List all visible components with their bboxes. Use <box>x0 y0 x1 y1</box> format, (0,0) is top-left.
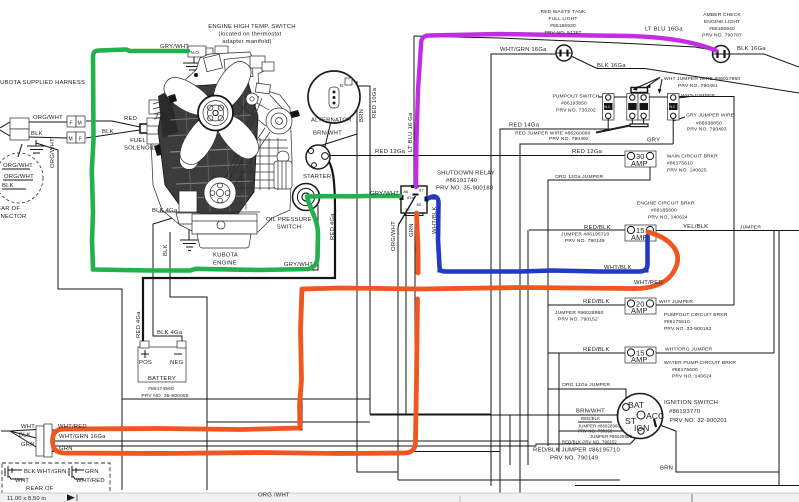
svg-text:WHT/GRN 16Ga: WHT/GRN 16Ga <box>59 434 106 440</box>
svg-text:PRV NO. 35-900188: PRV NO. 35-900188 <box>436 186 494 192</box>
svg-text:GRY/WHT: GRY/WHT <box>160 44 189 50</box>
svg-text:PRV NO. 33-900163: PRV NO. 33-900163 <box>664 326 711 332</box>
svg-text:PRV NO. 730202: PRV NO. 730202 <box>556 108 596 114</box>
svg-text:JUMPER #86028960: JUMPER #86028960 <box>590 434 632 439</box>
svg-text:N.C: N.C <box>605 105 611 109</box>
svg-text:WHT JUMPER WIRE #86027950: WHT JUMPER WIRE #86027950 <box>664 76 740 82</box>
svg-text:AMP: AMP <box>631 159 648 168</box>
svg-text:AMP: AMP <box>631 355 648 364</box>
svg-text:BLK 16Ga: BLK 16Ga <box>737 46 766 52</box>
svg-text:WHT/RED: WHT/RED <box>76 478 105 484</box>
svg-text:PUMPOUT CIRCUIT BRKR: PUMPOUT CIRCUIT BRKR <box>664 312 728 318</box>
svg-text:GRY: GRY <box>647 138 660 144</box>
svg-text:M: M <box>69 137 73 143</box>
svg-text:ENGINE: ENGINE <box>213 261 237 267</box>
svg-text:BLK 4Ga: BLK 4Ga <box>152 208 178 214</box>
svg-text:BATTERY: BATTERY <box>148 376 176 382</box>
svg-text:ACC: ACC <box>646 411 664 421</box>
svg-text:PRV NO. 790152: PRV NO. 790152 <box>578 429 613 434</box>
svg-text:RED/BLK: RED/BLK <box>584 225 611 231</box>
svg-text:PUMPOUT SWITCH: PUMPOUT SWITCH <box>552 94 599 100</box>
svg-text:M: M <box>78 121 82 127</box>
svg-text:ALTERNATOR: ALTERNATOR <box>311 118 352 124</box>
svg-text:BLK: BLK <box>24 469 36 475</box>
svg-text:RED JUMPER WIRE #86260090: RED JUMPER WIRE #86260090 <box>515 131 591 137</box>
svg-text:WHT/BLK: WHT/BLK <box>432 206 438 234</box>
svg-text:SHUTDOWN RELAY: SHUTDOWN RELAY <box>437 171 495 177</box>
svg-text:KUBOTA SUPPLIED HARNESS: KUBOTA SUPPLIED HARNESS <box>0 80 85 86</box>
svg-text:ENGINE LIGHT: ENGINE LIGHT <box>704 19 740 25</box>
svg-text:B: B <box>340 83 343 88</box>
svg-text:YEL/BLK: YEL/BLK <box>683 224 708 230</box>
svg-text:RED 4Ga: RED 4Ga <box>136 311 142 338</box>
svg-text:BLK: BLK <box>163 244 169 256</box>
svg-text:PRV NO. 140625: PRV NO. 140625 <box>667 168 707 174</box>
svg-text:RED/BLK PRV NO. 790152: RED/BLK PRV NO. 790152 <box>562 440 617 445</box>
svg-text:F: F <box>79 137 82 143</box>
svg-text:SWITCH: SWITCH <box>277 225 301 231</box>
svg-text:PRV NO. 790493: PRV NO. 790493 <box>687 127 727 133</box>
svg-text:RED 10Ga: RED 10Ga <box>372 87 378 118</box>
svg-text:87: 87 <box>419 188 424 193</box>
svg-text:#86038850: #86038850 <box>696 121 722 127</box>
svg-text:JUMPER #86028960: JUMPER #86028960 <box>555 310 603 316</box>
svg-text:BLK 4Ga: BLK 4Ga <box>157 330 183 336</box>
svg-text:ORG/WHT: ORG/WHT <box>33 115 63 121</box>
svg-text:(located on thermostat: (located on thermostat <box>218 32 281 38</box>
svg-text:GRN: GRN <box>85 469 99 475</box>
svg-text:PRV NO. 51387: PRV NO. 51387 <box>545 30 582 36</box>
svg-text:GRN: GRN <box>59 446 73 452</box>
svg-text:WHT/RED: WHT/RED <box>634 280 663 286</box>
svg-text:RED 14Ga: RED 14Ga <box>509 123 540 129</box>
svg-text:LT BLU 16Ga: LT BLU 16Ga <box>645 27 683 33</box>
svg-text:BLK: BLK <box>2 183 14 189</box>
svg-text:#86175610: #86175610 <box>667 161 693 167</box>
svg-text:WHT: WHT <box>21 424 35 430</box>
svg-text:30: 30 <box>405 207 410 212</box>
svg-text:WHT/GRN 16Ga: WHT/GRN 16Ga <box>500 47 547 53</box>
svg-text:ORG/WHT: ORG/WHT <box>50 138 56 168</box>
svg-text:F: F <box>70 121 73 127</box>
svg-text:BRN: BRN <box>660 466 673 472</box>
svg-text:AMBER CHECK: AMBER CHECK <box>703 12 741 18</box>
svg-text:RED/BLK: RED/BLK <box>583 347 610 353</box>
svg-text:RED 12Ga: RED 12Ga <box>375 149 406 155</box>
svg-text:RED/BLK: RED/BLK <box>581 416 600 421</box>
svg-text:ORG /WHT: ORG /WHT <box>258 493 290 499</box>
svg-text:85: 85 <box>417 202 422 207</box>
svg-text:FULL LIGHT: FULL LIGHT <box>548 16 577 22</box>
svg-text:BLK: BLK <box>102 129 114 135</box>
svg-text:RED 12Ga: RED 12Ga <box>572 149 603 155</box>
svg-text:GRY/WHT: GRY/WHT <box>370 191 399 197</box>
svg-text:FUEL: FUEL <box>130 138 146 144</box>
svg-text:PRV NO. 140624: PRV NO. 140624 <box>672 374 712 380</box>
svg-text:LT BLU 16 Ga: LT BLU 16 Ga <box>408 112 414 152</box>
svg-text:AMP: AMP <box>631 233 648 242</box>
svg-text:#86186940: #86186940 <box>709 26 735 32</box>
svg-text:#86185600: #86185600 <box>651 208 677 214</box>
svg-text:ORG/WHT: ORG/WHT <box>391 221 397 251</box>
svg-text:WHT/RED: WHT/RED <box>58 424 87 430</box>
svg-text:WHT JUMPER: WHT JUMPER <box>659 299 693 305</box>
svg-text:ENGINE CIRCUIT BRKR: ENGINE CIRCUIT BRKR <box>637 201 695 207</box>
svg-text:GRN: GRN <box>409 223 415 237</box>
svg-text:RED: RED <box>124 116 137 122</box>
svg-text:BRN: BRN <box>359 109 365 122</box>
svg-text:WHT/GRN: WHT/GRN <box>37 469 67 475</box>
svg-text:WATER PUMP CIRCUIT BRKR: WATER PUMP CIRCUIT BRKR <box>664 360 736 366</box>
svg-text:#86191740: #86191740 <box>446 178 478 184</box>
svg-text:EAR OF: EAR OF <box>0 206 20 212</box>
svg-text:#86174560: #86174560 <box>148 386 174 392</box>
svg-text:PRV NO. 790149: PRV NO. 790149 <box>565 238 605 244</box>
svg-text:#86175600: #86175600 <box>672 367 698 373</box>
svg-text:ORG 12Ga JUMPER: ORG 12Ga JUMPER <box>562 382 610 388</box>
svg-text:JUMPER: JUMPER <box>740 225 761 231</box>
svg-text:BLK 16Ga: BLK 16Ga <box>597 63 626 69</box>
svg-text:BLK: BLK <box>19 433 31 439</box>
svg-text:ORG/WHT: ORG/WHT <box>4 174 34 180</box>
svg-text:AMP: AMP <box>631 306 648 315</box>
svg-text:REAR OF: REAR OF <box>26 486 54 492</box>
svg-text:KUBOTA: KUBOTA <box>213 253 238 259</box>
svg-text:WHT/BLK: WHT/BLK <box>604 265 632 271</box>
svg-text:BAT: BAT <box>628 400 645 410</box>
svg-text:PRV NO. 790787: PRV NO. 790787 <box>702 33 742 39</box>
svg-text:PRV NO. 790492: PRV NO. 790492 <box>549 136 589 142</box>
svg-text:GRY/WHT: GRY/WHT <box>284 262 313 268</box>
svg-text:JUMPER #86195710: JUMPER #86195710 <box>561 232 609 238</box>
svg-text:11.00 x 8.50 in: 11.00 x 8.50 in <box>7 496 46 502</box>
svg-text:#86186930: #86186930 <box>550 23 576 29</box>
svg-text:IGN: IGN <box>634 423 649 433</box>
svg-text:PRV NO. 32-900201: PRV NO. 32-900201 <box>670 418 727 424</box>
svg-text:#86193850: #86193850 <box>561 101 587 107</box>
svg-text:#86193770: #86193770 <box>669 409 701 415</box>
svg-text:RED/BLK JUMPER #86195710: RED/BLK JUMPER #86195710 <box>533 448 621 454</box>
svg-text:86: 86 <box>404 189 409 194</box>
svg-text:MAIN CIRCUIT BRKR: MAIN CIRCUIT BRKR <box>667 154 718 160</box>
svg-text:OIL PRESSURE: OIL PRESSURE <box>266 217 312 223</box>
svg-text:PRV NO. 140624: PRV NO. 140624 <box>648 215 688 221</box>
svg-text:BRN/WHT: BRN/WHT <box>313 131 342 137</box>
svg-text:BRN/WHT: BRN/WHT <box>576 409 605 415</box>
svg-text:SOLENOID: SOLENOID <box>124 146 156 152</box>
svg-text:RED/BLK: RED/BLK <box>583 299 610 305</box>
svg-text:87a: 87a <box>407 195 414 200</box>
svg-text:PRV NO. 790152: PRV NO. 790152 <box>558 317 598 323</box>
svg-text:N.O.: N.O. <box>191 50 201 55</box>
svg-text:PRV NO. 790149: PRV NO. 790149 <box>550 456 598 462</box>
svg-text:GRN: GRN <box>21 442 35 448</box>
svg-text:ORG/WHT: ORG/WHT <box>3 163 33 169</box>
svg-text:NNECTOR: NNECTOR <box>0 214 26 220</box>
svg-text:adapter manifold): adapter manifold) <box>222 39 271 45</box>
svg-text:WHT/ORG JUMPER: WHT/ORG JUMPER <box>665 347 713 353</box>
svg-text:#86175510: #86175510 <box>664 319 690 325</box>
svg-text:POS: POS <box>139 360 152 366</box>
svg-text:GRY JUMPER WIRE: GRY JUMPER WIRE <box>686 113 735 119</box>
svg-text:RED WASTE TANK: RED WASTE TANK <box>541 9 587 15</box>
svg-text:BLK: BLK <box>31 131 43 137</box>
svg-text:NEG: NEG <box>170 360 184 366</box>
svg-text:RED 4Ga: RED 4Ga <box>330 213 336 240</box>
svg-text:STARTER: STARTER <box>303 174 331 180</box>
svg-text:N.C: N.C <box>670 105 676 109</box>
svg-text:IGNITION SWITCH: IGNITION SWITCH <box>664 400 718 406</box>
svg-text:ORG 12Ga JUMPER: ORG 12Ga JUMPER <box>555 174 603 180</box>
svg-text:WHT JUMPER: WHT JUMPER <box>681 93 715 99</box>
svg-text:WHT: WHT <box>15 478 29 484</box>
svg-text:PRV NO. 36-900056: PRV NO. 36-900056 <box>141 393 188 399</box>
svg-text:PRV NO. 790491: PRV NO. 790491 <box>678 83 718 89</box>
svg-text:ENGINE HIGH TEMP. SWITCH: ENGINE HIGH TEMP. SWITCH <box>208 24 295 30</box>
